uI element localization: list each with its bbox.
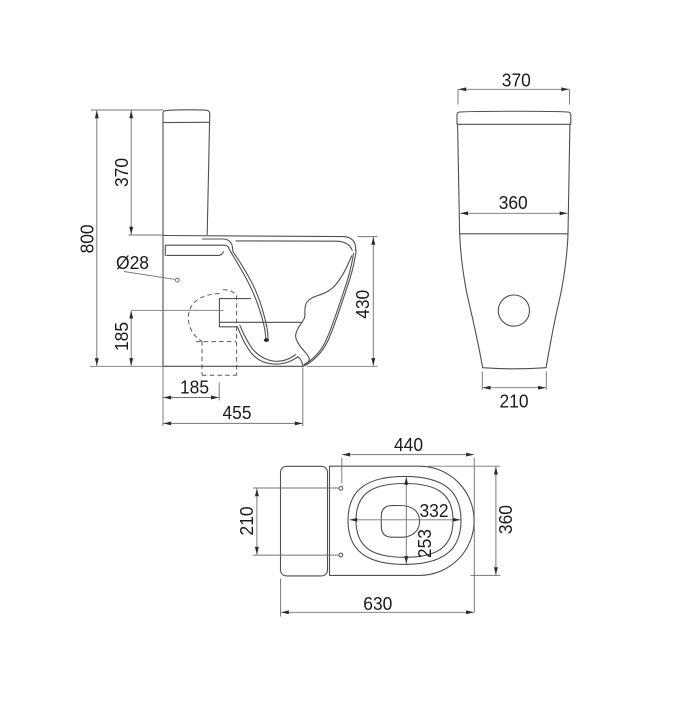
svg-text:430: 430 bbox=[352, 290, 373, 319]
svg-text:Ø28: Ø28 bbox=[116, 252, 149, 273]
svg-text:185: 185 bbox=[180, 377, 209, 398]
svg-text:253: 253 bbox=[414, 529, 435, 558]
svg-text:370: 370 bbox=[111, 158, 132, 187]
svg-text:210: 210 bbox=[500, 391, 529, 412]
svg-text:360: 360 bbox=[499, 192, 528, 213]
svg-text:800: 800 bbox=[77, 224, 98, 253]
svg-text:185: 185 bbox=[111, 322, 132, 351]
svg-text:332: 332 bbox=[420, 500, 449, 521]
svg-text:630: 630 bbox=[363, 593, 392, 614]
svg-text:370: 370 bbox=[502, 69, 531, 90]
svg-text:455: 455 bbox=[223, 402, 252, 423]
svg-text:440: 440 bbox=[394, 434, 423, 455]
svg-text:210: 210 bbox=[236, 507, 257, 536]
svg-text:360: 360 bbox=[495, 505, 516, 534]
